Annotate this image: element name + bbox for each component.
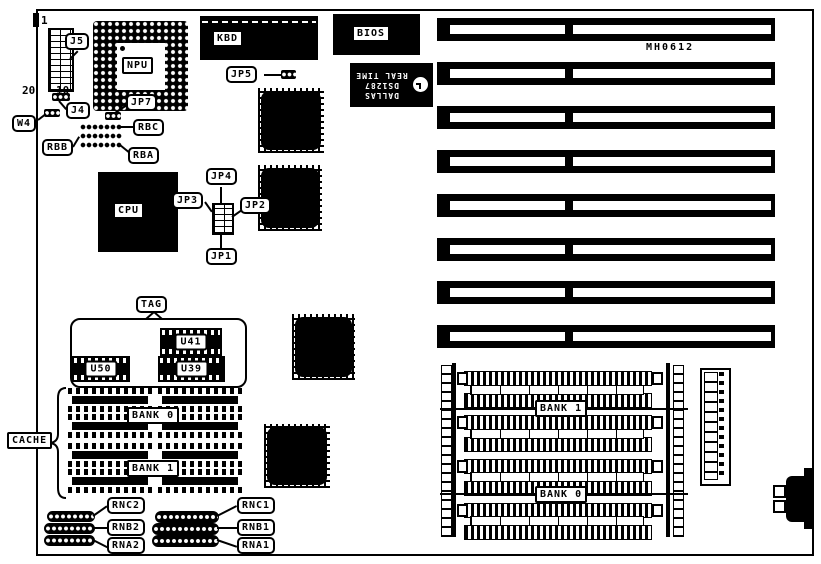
rna2-callout: RNA2 [107,537,145,554]
jp5-leader-line [264,74,281,76]
rtc-part-number: DS1287 [364,80,399,90]
simm-latch [457,372,468,385]
rtc-text: DALLAS DS1287 REAL TIME [355,70,407,100]
jp2-callout: JP2 [240,197,271,214]
rnb1-callout: RNB1 [237,519,275,536]
rbc-leader-line [121,126,133,128]
rtc-brand: DALLAS [364,90,399,100]
isa-slot-6 [437,238,775,261]
simm-contact-row [470,385,644,395]
u50-label: U50 [84,361,117,378]
power-connector-pins [704,372,718,480]
rnb1-network [152,523,219,535]
u39-label: U39 [175,361,208,378]
power-connector-ticks [719,372,724,478]
tag-callout: TAG [136,296,167,313]
u50-chip: U50 [72,356,130,382]
isa-slot-4 [437,150,775,173]
j4-callout: J4 [66,102,90,119]
cache-bank1-label: BANK 1 [127,460,179,477]
keyboard-connector [786,476,812,522]
simm-rail-left [452,363,456,537]
isa-slot-5 [437,194,775,217]
j5-pin1-label: 1 [41,14,48,27]
simm-latch [457,460,468,473]
jp4-leader-line [220,187,222,204]
simm-bank1-label: BANK 1 [535,400,587,417]
jp-jumper-block [212,203,234,235]
jp7-callout: JP7 [126,94,157,111]
bios-label: BIOS [352,25,390,42]
rbc-callout: RBC [133,119,164,136]
isa-slot-7 [437,281,775,304]
u39-chip: U39 [158,356,225,382]
keyboard-connector-step-top [804,468,812,478]
jp4-callout: JP4 [206,168,237,185]
jp3-callout: JP3 [172,192,203,209]
board-model-text: MH0612 [646,42,694,53]
rna1-callout: RNA1 [237,537,275,554]
simm-latch-column-right [673,365,684,537]
simm-latch [652,372,663,385]
qfp-chip-4 [264,424,330,488]
simm-contact-row [470,472,644,482]
simm-latch [652,460,663,473]
isa-slot-2 [437,62,775,85]
cache-bank0-label: BANK 0 [127,407,179,424]
j5-callout: J5 [65,33,89,50]
npu-pin1-dot [120,46,125,51]
rbb-resistor-row [80,132,122,140]
rbc-resistor-row [80,123,122,131]
board-edge-tick [33,13,39,27]
motherboard-diagram: 1 20 10 J5 J4 W4 NPU JP7 RBC RBB RBA CPU… [0,0,821,564]
rtc-type: REAL TIME [355,70,407,80]
rna1-network [152,535,219,547]
qfp-chip-3 [292,314,355,380]
qfp-chip-1 [258,88,324,153]
simm-latch-column-left [441,365,452,537]
power-connector [700,368,731,486]
npu-label: NPU [122,57,153,74]
u41-label: U41 [174,334,207,351]
rnc2-network [47,511,95,522]
cache-brace [50,386,70,500]
rnb2-leader-line [93,527,107,529]
simm-latch [457,504,468,517]
rnc1-network [155,511,219,523]
rnb1-leader-line [217,527,237,529]
rna2-network [44,535,95,546]
jp5-callout: JP5 [226,66,257,83]
rnb2-network [44,523,95,534]
w4-jumper [44,109,60,117]
j5-pin20-label: 20 [22,84,35,97]
jp1-leader-line [220,235,222,249]
simm-contact-row [470,516,644,526]
isa-slot-1 [437,18,775,41]
rnb2-callout: RNB2 [107,519,145,536]
cache-callout: CACHE [7,432,52,449]
simm-latch [652,504,663,517]
simm-bank0-label: BANK 0 [535,486,587,503]
cpu-label: CPU [113,202,144,219]
rnc1-callout: RNC1 [237,497,275,514]
keyboard-connector-plug [773,485,786,498]
simm-rail-right [666,363,670,537]
dallas-clock-logo-icon [413,78,428,93]
rba-callout: RBA [128,147,159,164]
simm-latch [457,416,468,429]
isa-slot-3 [437,106,775,129]
rbb-callout: RBB [42,139,73,156]
rtc-chip: DALLAS DS1287 REAL TIME [350,63,433,107]
keyboard-connector-step-bottom [804,521,812,529]
simm-latch [652,416,663,429]
rnc2-callout: RNC2 [107,497,145,514]
simm-socket [464,415,652,430]
keyboard-connector-plug [773,500,786,513]
jp7-jumper [105,112,121,120]
jp1-callout: JP1 [206,248,237,265]
kbd-label: KBD [212,30,243,47]
kbd-notch-line [202,21,316,23]
rba-resistor-row [80,141,122,149]
simm-socket [464,525,652,540]
j5-pin10-label: 10 [56,84,69,97]
jp5-jumper [281,70,296,79]
w4-callout: W4 [12,115,36,132]
u41-chip: U41 [160,328,222,356]
isa-slot-8 [437,325,775,348]
simm-socket [464,371,652,386]
simm-socket [464,437,652,452]
simm-contact-row [470,429,644,439]
